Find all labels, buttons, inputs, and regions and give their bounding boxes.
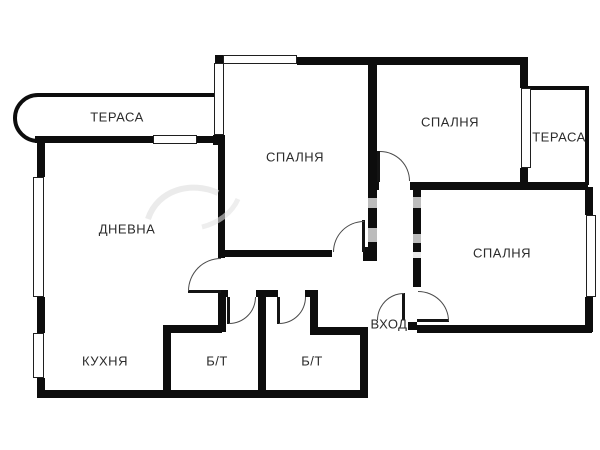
wall-top-main bbox=[297, 57, 528, 65]
wall-left-outer-b bbox=[37, 297, 45, 333]
room-label-bedroom-1: СПАЛНЯ bbox=[266, 150, 324, 165]
wall-left-outer-a bbox=[37, 140, 45, 177]
window-bed3-right bbox=[586, 215, 596, 297]
room-label-terrace-1: ТЕРАСА bbox=[90, 110, 144, 125]
wall-divider-bed1-bed2 bbox=[368, 63, 377, 253]
watermark-squiggle bbox=[140, 175, 250, 235]
window-bed1-terrace bbox=[214, 63, 224, 135]
window-bed1-top bbox=[223, 55, 297, 64]
room-label-bathroom-1: Б/Т bbox=[206, 354, 228, 369]
door-arc-bath1 bbox=[229, 297, 256, 324]
wall-bed2-terrace-top bbox=[520, 57, 528, 88]
wall-bed1-corner-block bbox=[363, 247, 377, 261]
watermark-patch bbox=[413, 252, 421, 258]
wall-bottom-outer bbox=[37, 390, 368, 398]
room-label-living-room: ДНЕВНА bbox=[99, 222, 156, 237]
room-label-terrace-2: ТЕРАСА bbox=[532, 130, 586, 145]
window-terrace1-living bbox=[153, 135, 197, 144]
wall-bed3-right-a bbox=[585, 187, 593, 215]
window-left-kitchen bbox=[33, 333, 44, 378]
wall-bath2-right bbox=[360, 327, 368, 398]
wall-bed1-bottom bbox=[223, 250, 332, 257]
wall-bath-middle bbox=[258, 290, 266, 398]
room-label-entrance: ВХОД bbox=[371, 317, 408, 332]
window-bed2-terrace2 bbox=[521, 88, 531, 168]
watermark-patch bbox=[413, 234, 421, 243]
door-arc-bed1 bbox=[333, 221, 364, 252]
wall-hall-top-b bbox=[410, 182, 588, 190]
wall-top-left-outer-a bbox=[35, 136, 153, 143]
wall-bed2-terrace-block bbox=[520, 168, 528, 190]
wall-bath1-top-a bbox=[220, 290, 228, 297]
room-label-bedroom-3: СПАЛНЯ bbox=[473, 246, 531, 261]
wall-terrace-corner-block bbox=[213, 135, 225, 145]
wall-bath1-left bbox=[163, 325, 171, 398]
room-label-bathroom-2: Б/Т bbox=[301, 354, 323, 369]
watermark-patch bbox=[368, 198, 377, 208]
door-arc-bed2 bbox=[380, 151, 410, 181]
wall-bath2-top-a bbox=[266, 290, 278, 297]
door-arc-bed3 bbox=[418, 291, 449, 321]
wall-bed3-bottom bbox=[417, 325, 592, 333]
door-arc-bath2 bbox=[279, 297, 306, 324]
floor-plan: ТЕРАСА ДНЕВНА КУХНЯ СПАЛНЯ СПАЛНЯ ТЕРАСА… bbox=[0, 0, 600, 450]
window-left-living bbox=[33, 177, 44, 297]
wall-hall-top-a bbox=[368, 182, 379, 190]
door-arc-living bbox=[188, 258, 221, 291]
watermark-patch bbox=[368, 228, 377, 242]
room-label-kitchen: КУХНЯ bbox=[82, 354, 128, 369]
watermark-patch bbox=[413, 197, 421, 208]
wall-bath1-top-left bbox=[166, 325, 222, 333]
wall-entry-hinge-block bbox=[408, 322, 417, 330]
room-label-bedroom-2: СПАЛНЯ bbox=[421, 115, 479, 130]
